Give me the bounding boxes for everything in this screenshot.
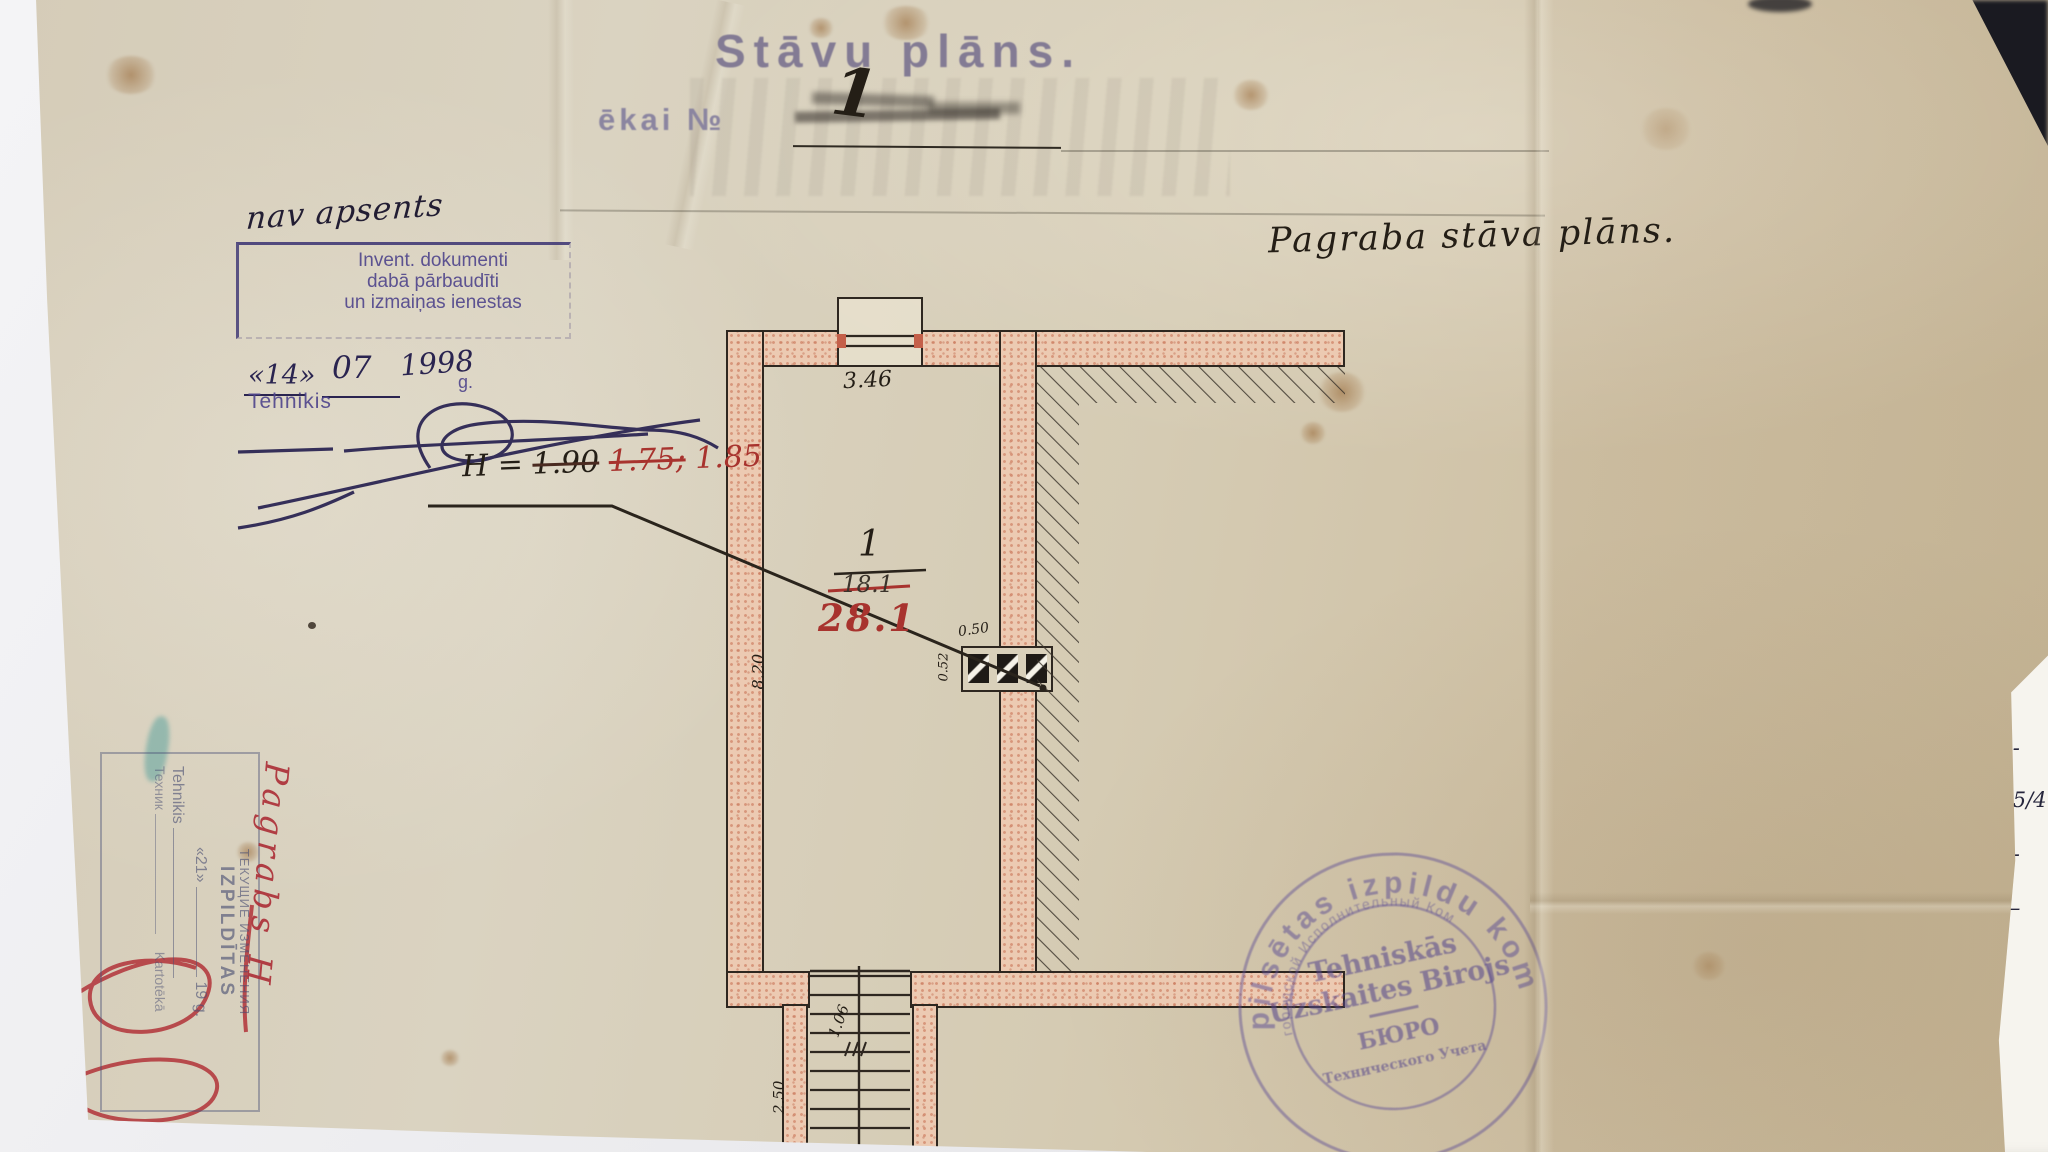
room-old-area: 18.1 [842, 572, 893, 598]
chimney-block [961, 646, 1053, 692]
window-bay [837, 297, 923, 367]
speck [33, 474, 42, 482]
stain [1300, 422, 1326, 444]
stain [1640, 108, 1692, 150]
changes-stamp-technician-lv: Tehnikis [169, 766, 186, 824]
stamp-date-month: 07 [332, 350, 371, 386]
changes-stamp-header-lv: IZPILDĪTAS [215, 766, 237, 1098]
technician-label: Tehnikis [248, 390, 332, 414]
horizontal-fold [1530, 892, 2048, 914]
crease [548, 0, 574, 260]
dimension-flue-width: 0.50 [957, 620, 990, 640]
changes-stamp-technician-ru: Техник [152, 766, 168, 810]
changes-stamp-card-label: Kartotēkā [152, 952, 168, 1012]
stair-wall-right [912, 1004, 938, 1152]
flue-opening [968, 654, 989, 683]
changes-stamp-box: ТЕКУЩИЕ ИЗМЕНЕНИЯ IZPILDĪTAS «21» 19 g. … [100, 752, 260, 1112]
building-number-label: ēkai № [598, 102, 726, 138]
eraser-smudge [690, 78, 1230, 196]
ruled-line-faint [560, 209, 1545, 216]
height-new-value: 1.85 [695, 439, 763, 476]
speck [308, 622, 316, 629]
paper-fold-tone [1538, 0, 2048, 1152]
stamp-date-suffix: g. [458, 372, 473, 393]
page-title: Stāvu plāns. [715, 24, 1082, 78]
wall-top-right [921, 330, 1345, 367]
date-underline [322, 396, 400, 398]
changes-stamp-date-tail: 19 g. [192, 981, 209, 1017]
dimension-left-height: 8.20 [749, 630, 768, 690]
dimension-stair-width: 1.06 [825, 1002, 853, 1040]
stain [1318, 372, 1366, 412]
scribbled-out-text [928, 102, 1020, 114]
changes-stamp-blank [196, 887, 209, 977]
height-annotation: H = 1.90 1.75; 1.85 [461, 439, 762, 484]
changes-stamp-date-day: «21» [192, 847, 209, 883]
speck [40, 882, 52, 892]
document-photo: 70- 125/4 25- 1— 7 Stāvu plāns. ēkai № [0, 0, 2048, 1152]
flue-opening [1026, 654, 1047, 683]
inspection-stamp-box: Invent. dokumenti dabā pārbaudīti un izm… [236, 242, 571, 339]
room-new-area: 28.1 [818, 596, 916, 640]
stamp-date-day: «14» [248, 360, 315, 391]
wall-bottom-left [726, 971, 810, 1008]
floor-plan-sheet: Stāvu plāns. ēkai № 1 Pagraba stāva plān… [0, 0, 2048, 1152]
building-number-value: 1 [827, 51, 882, 134]
stain [440, 1050, 460, 1066]
changes-stamp-blank [155, 814, 168, 934]
dimension-flue-depth: 0.52 [937, 638, 952, 682]
changes-stamp-blank [173, 828, 186, 978]
dimension-stair-run: 2.50 [770, 1060, 788, 1114]
room-number: 1 [858, 524, 881, 565]
handwritten-note: nav apsents [245, 187, 445, 237]
flue-opening [997, 654, 1018, 683]
inspection-stamp-line: Invent. dokumenti [297, 250, 569, 271]
stain [1232, 80, 1270, 110]
inspection-stamp-line: un izmaiņas ienestas [297, 292, 569, 313]
vertical-fold [1524, 0, 1554, 1152]
stain [1692, 952, 1726, 980]
height-prefix: H = [461, 447, 523, 484]
height-old-value: 1.90 [532, 444, 600, 481]
height-mid-value: 1.75; [608, 441, 686, 479]
inspection-stamp-line: dabā pārbaudīti [297, 271, 569, 292]
dimension-top-width: 3.46 [842, 367, 892, 395]
stain [104, 56, 158, 94]
ruled-line-faint [1061, 150, 1549, 152]
